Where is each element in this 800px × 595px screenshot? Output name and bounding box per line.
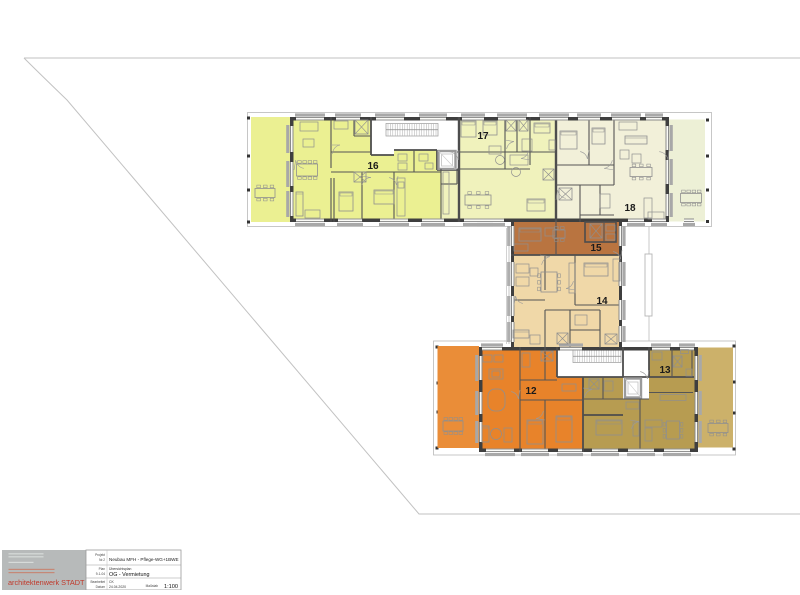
svg-text:18: 18 — [624, 203, 636, 214]
svg-text:14: 14 — [596, 296, 608, 307]
svg-text:Nr.2: Nr.2 — [99, 558, 105, 562]
svg-text:Projekt: Projekt — [95, 553, 105, 557]
svg-text:architektenwerk STADT: architektenwerk STADT — [8, 578, 85, 587]
svg-text:Maßstab: Maßstab — [146, 584, 159, 588]
svg-text:17: 17 — [477, 131, 489, 142]
svg-text:Übersichtsplan: Übersichtsplan — [109, 567, 132, 571]
svg-text:9-1-04: 9-1-04 — [96, 572, 105, 576]
svg-text:12: 12 — [525, 386, 537, 397]
svg-text:Neubau MFH - Pflege-WG+1BWE: Neubau MFH - Pflege-WG+1BWE — [109, 557, 179, 562]
svg-text:CK: CK — [109, 580, 114, 584]
svg-text:13: 13 — [659, 365, 671, 376]
svg-text:24.04.2020: 24.04.2020 — [109, 585, 126, 589]
svg-text:OG - Vermietung: OG - Vermietung — [109, 572, 149, 578]
svg-text:Datum: Datum — [96, 585, 106, 589]
svg-text:Plan: Plan — [99, 567, 106, 571]
svg-text:15: 15 — [590, 243, 602, 254]
svg-text:1:100: 1:100 — [164, 584, 178, 590]
svg-text:Bearbeitet: Bearbeitet — [90, 580, 105, 584]
svg-text:16: 16 — [367, 161, 379, 172]
